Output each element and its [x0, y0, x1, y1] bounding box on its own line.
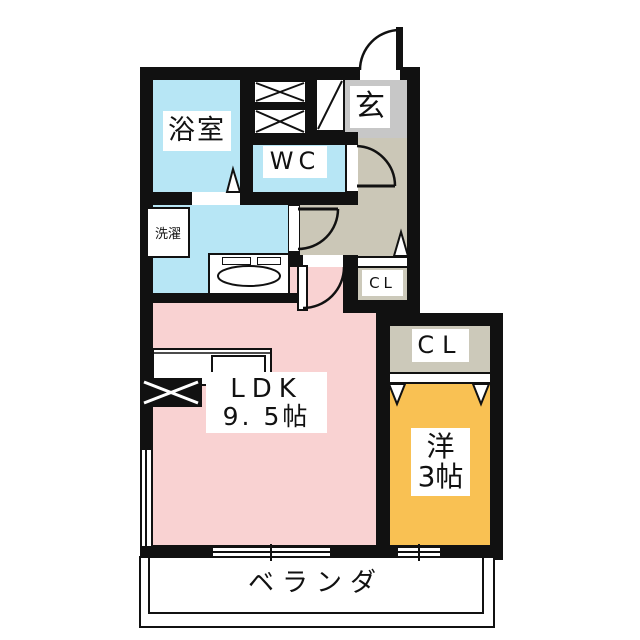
veranda-inner-border: ベランダ — [148, 556, 484, 614]
bedroom-closet-label: CL — [417, 333, 463, 359]
shoe-cabinet — [315, 78, 345, 132]
wall-under-wc — [253, 192, 358, 205]
pipe-shaft-box — [140, 378, 202, 407]
pipe-space-box-1 — [253, 80, 307, 104]
bathroom-doorway — [192, 192, 240, 205]
hall-closet-door — [358, 256, 407, 268]
ldk-doorway — [303, 255, 343, 267]
entrance-label-box: 玄 — [350, 86, 390, 128]
hall-closet-label: CL — [369, 275, 396, 291]
washroom-doorway — [289, 206, 299, 251]
ldk-label: LDK — [230, 375, 303, 403]
ldk-size-label: 9. 5帖 — [223, 403, 311, 430]
wc-label-box: WC — [263, 146, 327, 178]
wall-right-upper — [407, 67, 420, 326]
pipe-space-box-2 — [253, 108, 307, 135]
washbasin-shelf-right — [257, 257, 281, 265]
wc-label: WC — [270, 149, 321, 175]
bathroom-label-box: 浴室 — [163, 111, 231, 151]
bedroom-closet-label-box: CL — [412, 329, 469, 362]
bathroom-label: 浴室 — [168, 116, 226, 145]
ldk-label-box: LDK 9. 5帖 — [206, 372, 327, 433]
laundry-label: 洗濯 — [155, 223, 181, 242]
entrance-door-arc — [360, 30, 400, 70]
bedroom-size-label: 3帖 — [418, 462, 464, 492]
floor-plan: 洗濯 ベランダ — [0, 0, 640, 640]
washbasin-shelf-left — [222, 257, 251, 265]
wall-under-hall-closet — [343, 300, 420, 313]
wall-bathroom-right — [240, 67, 253, 205]
wall-closet-top — [376, 313, 503, 326]
bedroom-label-box: 洋 3帖 — [411, 428, 470, 496]
hall-closet-label-box: CL — [362, 270, 403, 296]
window-left — [140, 448, 153, 548]
wc-doorway — [347, 145, 358, 191]
wall-right-lower — [490, 313, 503, 560]
washing-machine: 洗濯 — [146, 207, 190, 258]
bedroom-closet-door — [390, 372, 490, 384]
hallway-lower — [300, 205, 358, 257]
entrance-door-leaf — [396, 27, 403, 70]
hallway-upper — [358, 138, 407, 257]
veranda-label: ベランダ — [248, 562, 384, 599]
entrance-doorway — [360, 67, 400, 80]
bedroom-label: 洋 — [426, 432, 454, 462]
wall-ldk-bedroom — [376, 313, 390, 560]
entrance-label: 玄 — [355, 91, 385, 123]
